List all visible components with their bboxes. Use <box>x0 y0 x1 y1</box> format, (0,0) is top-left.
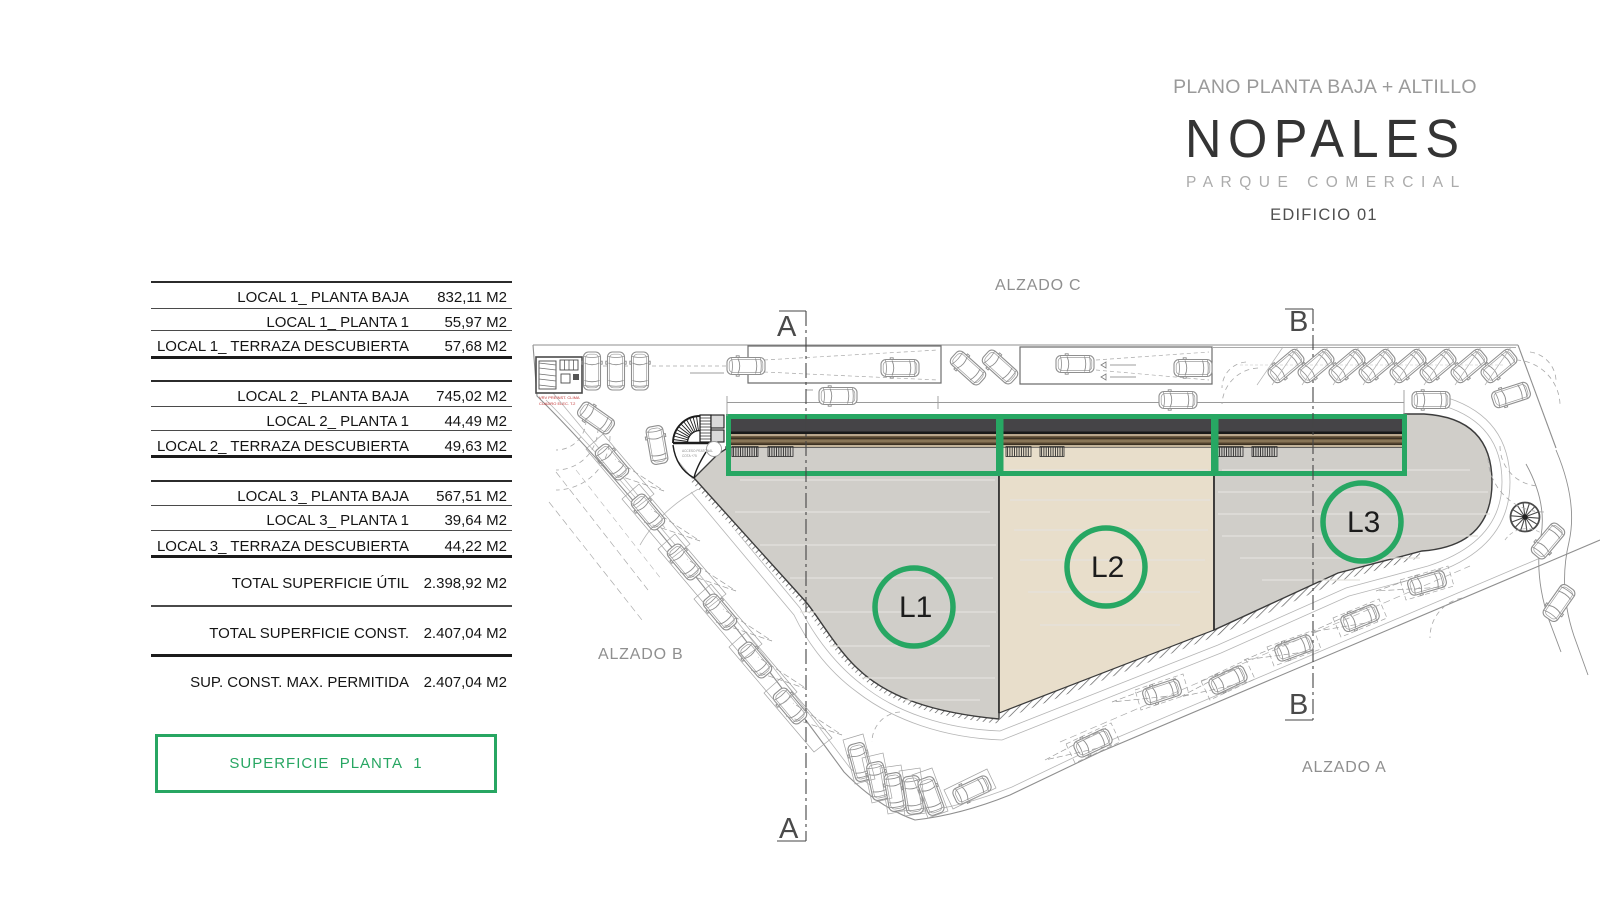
svg-text:A: A <box>779 813 799 845</box>
svg-text:ALZADO A: ALZADO A <box>1302 759 1387 776</box>
svg-text:B: B <box>1289 306 1308 338</box>
svg-text:L3: L3 <box>1347 506 1380 539</box>
svg-text:ACCESO PEATONAL: ACCESO PEATONAL <box>682 449 713 453</box>
svg-text:A: A <box>777 311 797 343</box>
svg-text:ALZADO C: ALZADO C <box>995 277 1081 294</box>
svg-text:L2: L2 <box>1091 551 1124 584</box>
svg-text:ALZADO B: ALZADO B <box>598 646 684 663</box>
svg-text:VRV PREINST. CLIMA: VRV PREINST. CLIMA <box>539 395 580 400</box>
svg-text:CUADRO ELEC. T.2: CUADRO ELEC. T.2 <box>539 401 576 406</box>
svg-text:COTA +75: COTA +75 <box>682 454 697 458</box>
svg-text:B: B <box>1289 689 1308 721</box>
svg-text:L1: L1 <box>899 591 932 624</box>
